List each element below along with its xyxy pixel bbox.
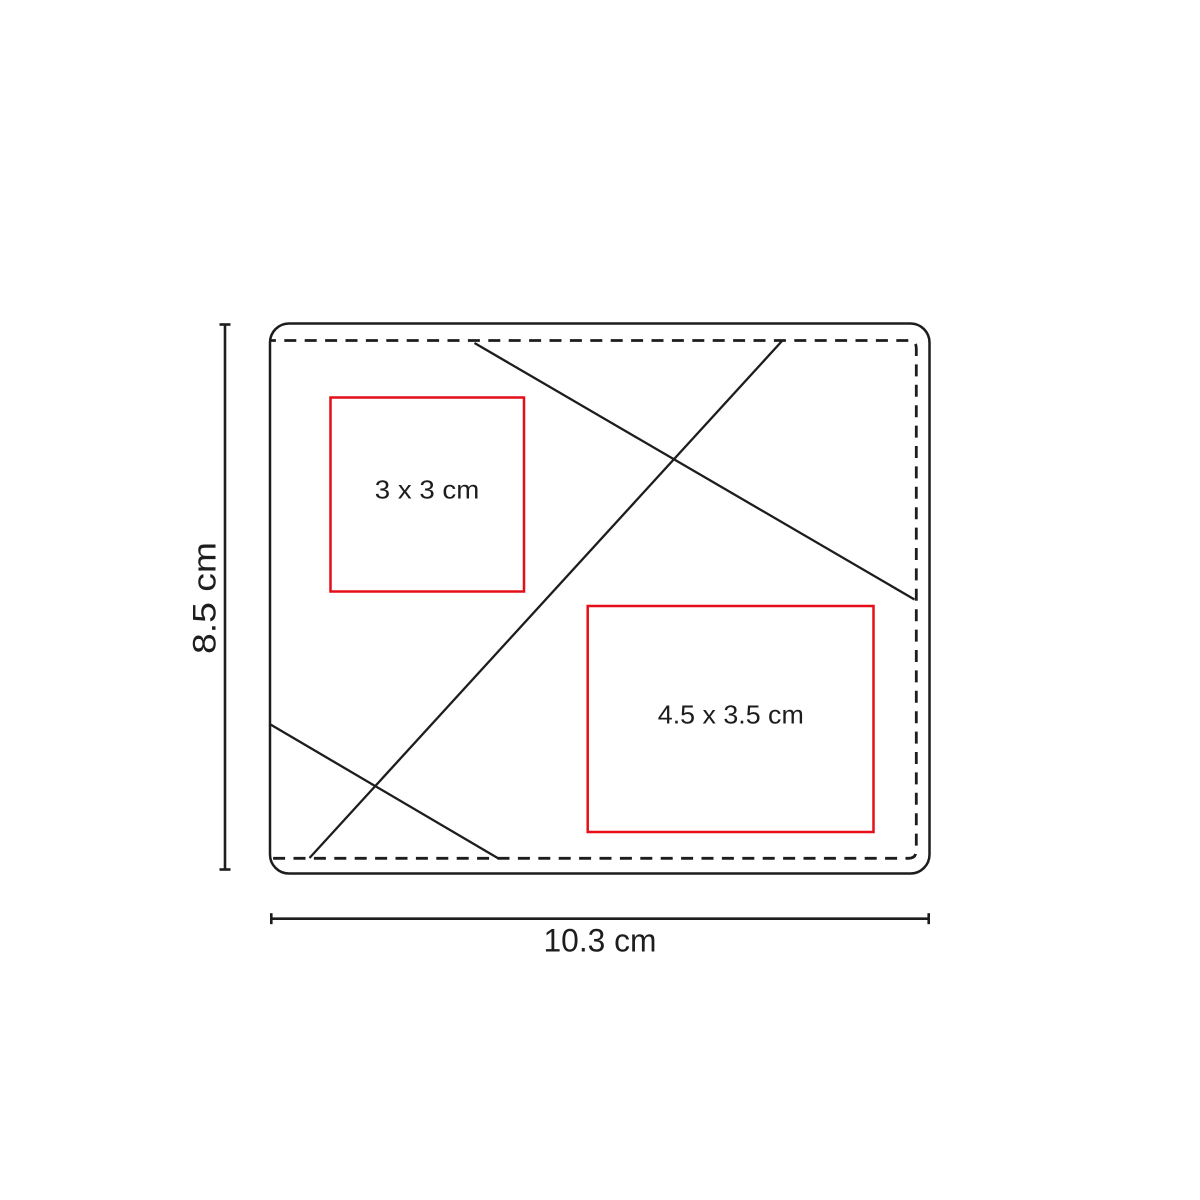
svg-text:10.3 cm: 10.3 cm	[544, 922, 657, 958]
svg-text:4.5 x 3.5 cm: 4.5 x 3.5 cm	[658, 699, 804, 729]
svg-text:3 x 3 cm: 3 x 3 cm	[375, 475, 480, 505]
svg-text:8.5 cm: 8.5 cm	[187, 542, 223, 654]
